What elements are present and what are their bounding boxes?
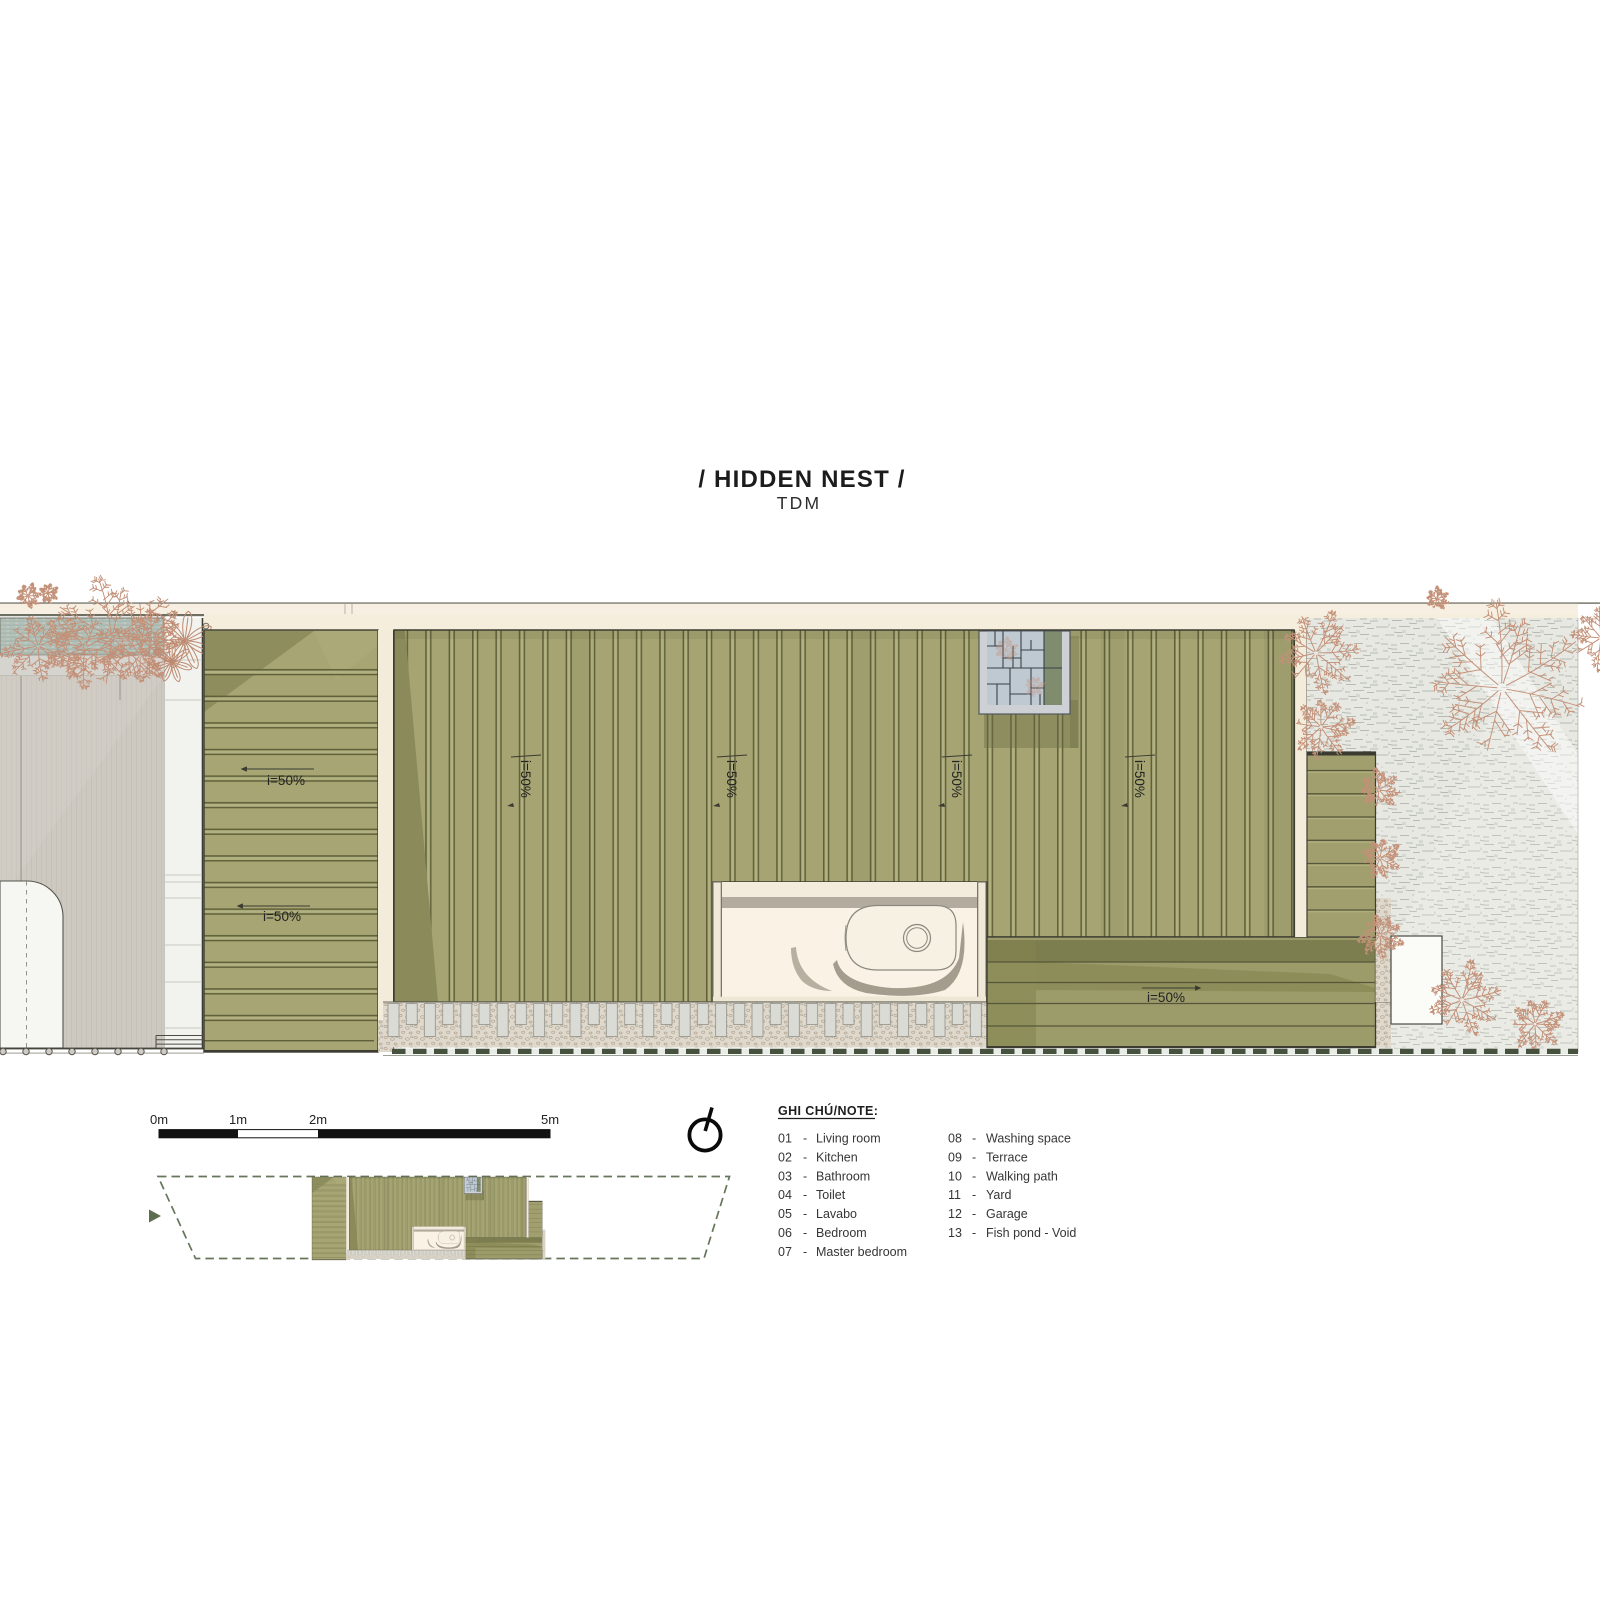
svg-text:02: 02 <box>778 1150 792 1164</box>
svg-text:Fish pond - Void: Fish pond - Void <box>986 1226 1076 1240</box>
svg-text:i=50%: i=50% <box>267 773 305 788</box>
svg-text:Kitchen: Kitchen <box>816 1150 858 1164</box>
svg-text:05: 05 <box>778 1207 792 1221</box>
svg-text:-: - <box>972 1188 976 1202</box>
svg-text:-: - <box>972 1207 976 1221</box>
svg-text:i=50%: i=50% <box>949 760 964 798</box>
svg-text:10: 10 <box>948 1169 962 1183</box>
svg-text:-: - <box>803 1226 807 1240</box>
svg-text:2m: 2m <box>309 1112 327 1127</box>
svg-text:01: 01 <box>778 1132 792 1146</box>
svg-text:1m: 1m <box>229 1112 247 1127</box>
svg-text:-: - <box>803 1188 807 1202</box>
svg-text:Washing space: Washing space <box>986 1132 1071 1146</box>
svg-text:Bathroom: Bathroom <box>816 1169 870 1183</box>
svg-text:Master bedroom: Master bedroom <box>816 1245 907 1259</box>
svg-text:06: 06 <box>778 1226 792 1240</box>
svg-text:12: 12 <box>948 1207 962 1221</box>
svg-text:/ HIDDEN NEST /: / HIDDEN NEST / <box>698 466 905 493</box>
svg-text:-: - <box>803 1169 807 1183</box>
svg-text:Walking path: Walking path <box>986 1169 1058 1183</box>
svg-text:GHI CHÚ/NOTE:: GHI CHÚ/NOTE: <box>778 1103 878 1118</box>
svg-text:-: - <box>803 1132 807 1146</box>
svg-text:09: 09 <box>948 1150 962 1164</box>
svg-text:0m: 0m <box>150 1112 168 1127</box>
svg-text:-: - <box>972 1150 976 1164</box>
svg-text:04: 04 <box>778 1188 792 1202</box>
svg-text:i=50%: i=50% <box>263 909 301 924</box>
svg-text:-: - <box>803 1245 807 1259</box>
svg-text:Toilet: Toilet <box>816 1188 846 1202</box>
svg-text:-: - <box>803 1150 807 1164</box>
svg-text:11: 11 <box>948 1188 961 1202</box>
svg-text:Garage: Garage <box>986 1207 1028 1221</box>
svg-text:-: - <box>972 1169 976 1183</box>
svg-text:5m: 5m <box>541 1112 559 1127</box>
svg-text:Bedroom: Bedroom <box>816 1226 867 1240</box>
svg-text:Living room: Living room <box>816 1132 881 1146</box>
svg-text:08: 08 <box>948 1132 962 1146</box>
svg-text:i=50%: i=50% <box>1132 760 1147 798</box>
svg-text:07: 07 <box>778 1245 792 1259</box>
svg-text:TDM: TDM <box>777 493 822 513</box>
svg-text:i=50%: i=50% <box>1147 990 1185 1005</box>
svg-text:-: - <box>803 1207 807 1221</box>
svg-text:03: 03 <box>778 1169 792 1183</box>
svg-text:13: 13 <box>948 1226 962 1240</box>
svg-text:-: - <box>972 1132 976 1146</box>
svg-text:Terrace: Terrace <box>986 1150 1028 1164</box>
svg-text:i=50%: i=50% <box>724 760 739 798</box>
svg-text:Yard: Yard <box>986 1188 1012 1202</box>
svg-text:i=50%: i=50% <box>518 760 533 798</box>
svg-text:Lavabo: Lavabo <box>816 1207 857 1221</box>
svg-text:-: - <box>972 1226 976 1240</box>
